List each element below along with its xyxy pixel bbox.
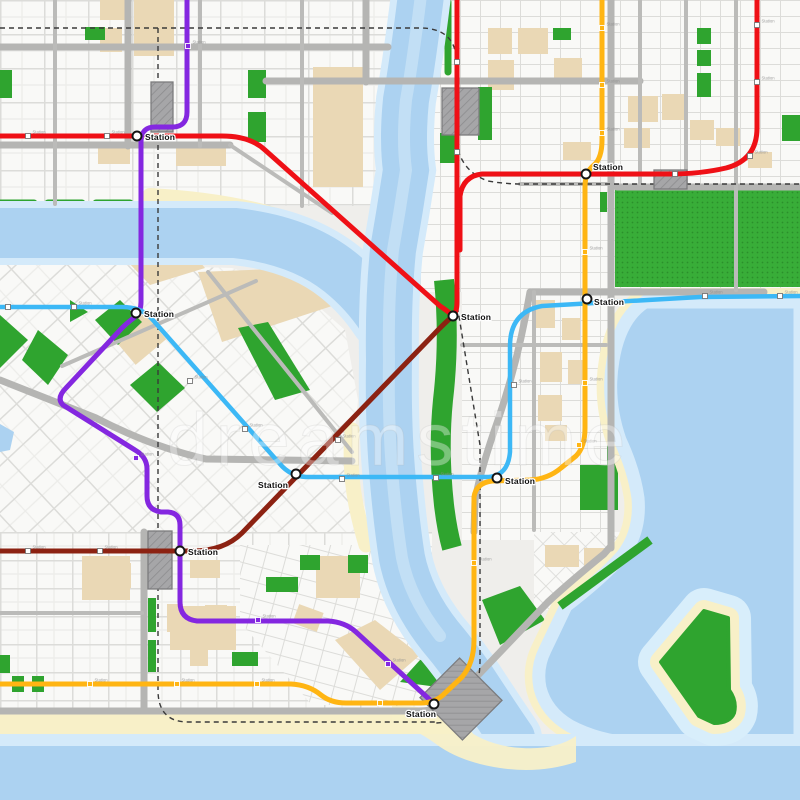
- stop-marker-orange: [175, 682, 180, 687]
- minor-stop-label: Station: [607, 79, 621, 84]
- minor-stop-label: Station: [762, 19, 776, 24]
- stop-marker-orange: [600, 26, 605, 31]
- stop-marker-white: [455, 150, 460, 155]
- station-name-label: Station: [188, 547, 218, 557]
- stop-marker-purple: [386, 662, 391, 667]
- minor-stop-label: Station: [105, 545, 119, 550]
- station-marker: [430, 700, 439, 709]
- minor-stop-label: Station: [590, 246, 604, 251]
- map-canvas: StationStationStationStationStationStati…: [0, 0, 800, 800]
- stop-marker-white: [6, 305, 11, 310]
- minor-stop-label: Station: [193, 40, 207, 45]
- minor-stop-label: Station: [182, 678, 196, 683]
- minor-stop-label: Station: [195, 375, 209, 380]
- station-name-label: Station: [258, 480, 288, 490]
- minor-stop-label: Station: [33, 130, 47, 135]
- stop-marker-white: [188, 379, 193, 384]
- minor-stop-label: Station: [755, 150, 769, 155]
- stop-marker-orange: [255, 682, 260, 687]
- minor-stop-label: Station: [263, 614, 277, 619]
- minor-stop-label: Station: [393, 658, 407, 663]
- station-marker: [133, 132, 142, 141]
- station-building: [442, 88, 479, 135]
- stop-marker-white: [26, 549, 31, 554]
- station-name-label: Station: [461, 312, 491, 322]
- station-marker: [176, 547, 185, 556]
- station-marker: [583, 295, 592, 304]
- stop-marker-white: [703, 294, 708, 299]
- stop-marker-orange: [472, 561, 477, 566]
- station-marker: [132, 309, 141, 318]
- stop-marker-white: [105, 134, 110, 139]
- stop-marker-orange: [600, 83, 605, 88]
- minor-stop-label: Station: [607, 22, 621, 27]
- minor-stop-label: Station: [590, 377, 604, 382]
- stop-marker-white: [72, 305, 77, 310]
- stop-marker-orange: [378, 701, 383, 706]
- stop-marker-white: [778, 294, 783, 299]
- station-name-label: Station: [144, 309, 174, 319]
- stop-marker-orange: [583, 250, 588, 255]
- minor-stop-label: Station: [95, 678, 109, 683]
- island: [661, 611, 735, 723]
- dotted-park: [615, 188, 800, 287]
- station-name-label: Station: [145, 132, 175, 142]
- minor-stop-label: Station: [785, 290, 799, 295]
- stop-marker-white: [748, 154, 753, 159]
- station-name-label: Station: [406, 709, 436, 719]
- stop-marker-white: [512, 383, 517, 388]
- stop-marker-white: [455, 60, 460, 65]
- stop-marker-purple: [186, 44, 191, 49]
- station-marker: [449, 312, 458, 321]
- minor-stop-label: Station: [710, 290, 724, 295]
- minor-stop-label: Station: [112, 130, 126, 135]
- watermark-text: dreamstime: [167, 398, 634, 481]
- station-name-label: Station: [593, 162, 623, 172]
- minor-stop-label: Station: [479, 557, 493, 562]
- stop-marker-white: [98, 549, 103, 554]
- minor-stop-label: Station: [141, 452, 155, 457]
- minor-stop-label: Station: [79, 301, 93, 306]
- stop-marker-white: [755, 80, 760, 85]
- station-building: [148, 531, 172, 589]
- station-name-label: Station: [594, 297, 624, 307]
- station-marker: [582, 170, 591, 179]
- minor-stop-label: Station: [33, 545, 47, 550]
- stop-marker-orange: [88, 682, 93, 687]
- stop-marker-white: [673, 172, 678, 177]
- stop-marker-orange: [600, 131, 605, 136]
- minor-stop-label: Station: [607, 127, 621, 132]
- stop-marker-white: [755, 23, 760, 28]
- stop-marker-white: [26, 134, 31, 139]
- stop-marker-orange: [583, 381, 588, 386]
- metro-city-map: StationStationStationStationStationStati…: [0, 0, 800, 800]
- minor-stop-label: Station: [519, 379, 533, 384]
- stop-marker-purple: [134, 456, 139, 461]
- minor-stop-label: Station: [262, 678, 276, 683]
- minor-stop-label: Station: [762, 76, 776, 81]
- stop-marker-purple: [256, 618, 261, 623]
